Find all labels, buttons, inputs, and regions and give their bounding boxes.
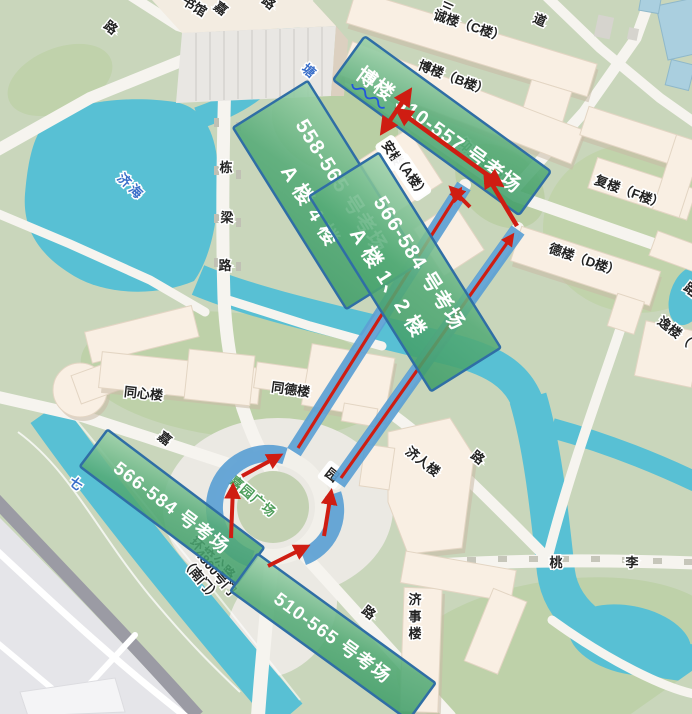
library-tower (152, 0, 348, 103)
road-label-dongliang-0: 栋 (219, 160, 232, 175)
campus-map: 书馆 路 嘉 路 三 道 诚楼（C楼） 博楼（B楼） 安楼 （A楼） 复楼（F楼… (0, 0, 692, 714)
roundabout-arrow-west (231, 487, 233, 538)
road-label-tao: 桃 (549, 555, 562, 570)
road-label-dongliang-1: 梁 (219, 210, 234, 225)
label-jishilou-0: 济 (408, 592, 422, 607)
road-label-dongliang-2: 路 (218, 258, 232, 273)
label-jishilou-2: 楼 (408, 626, 421, 641)
road-label-li: 李 (624, 555, 639, 570)
label-jishilou-1: 事 (408, 609, 421, 624)
campus-map-svg: 书馆 路 嘉 路 三 道 诚楼（C楼） 博楼（B楼） 安楼 （A楼） 复楼（F楼… (0, 0, 692, 714)
